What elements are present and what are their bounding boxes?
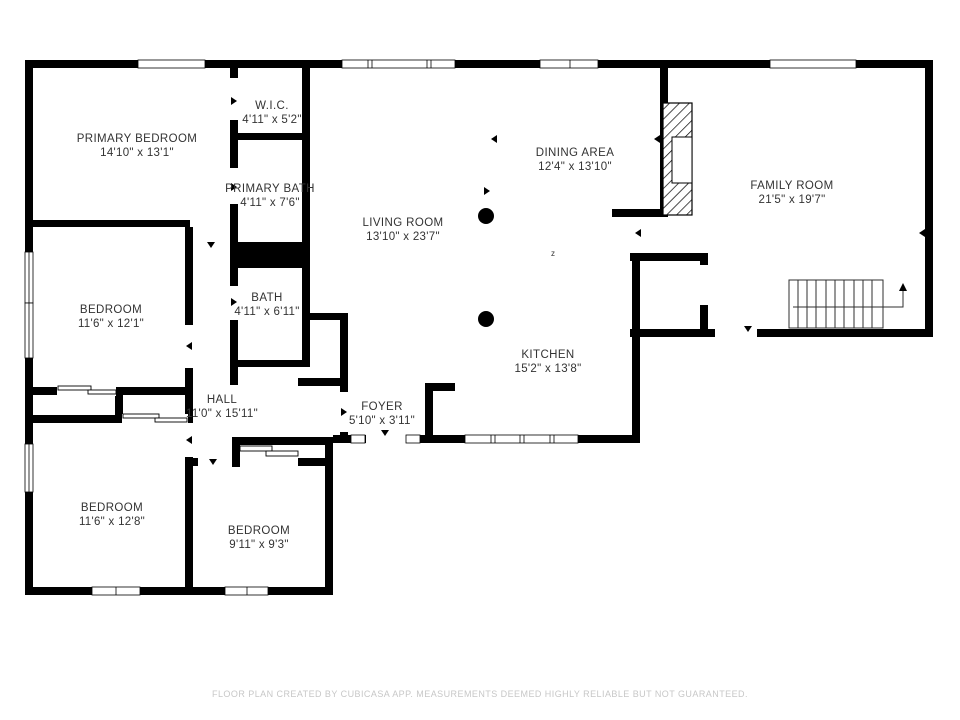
window xyxy=(342,60,455,68)
wall-segment xyxy=(340,313,348,386)
sliding-door xyxy=(266,451,298,456)
camera-mark xyxy=(654,135,660,143)
camera-mark xyxy=(635,229,641,237)
window-opening xyxy=(770,60,856,68)
wall-segment xyxy=(33,220,190,227)
room-dims-primary-bedroom: 14'10" x 13'1" xyxy=(100,147,174,159)
front-door-gap xyxy=(366,433,408,445)
wall-segment xyxy=(302,60,310,367)
sliding-door xyxy=(123,414,159,418)
room-label-kitchen: KITCHEN xyxy=(521,349,574,361)
room-label-foyer: FOYER xyxy=(361,401,403,413)
wall-segment xyxy=(757,329,933,337)
wall-segment xyxy=(700,253,708,265)
wall-segment xyxy=(230,133,310,140)
support-columns xyxy=(478,208,494,327)
room-label-primary-bedroom: PRIMARY BEDROOM xyxy=(77,133,198,145)
stair-up-arrow xyxy=(899,283,907,291)
room-dims-hall: 11'0" x 15'11" xyxy=(186,408,258,420)
window xyxy=(351,435,365,443)
window xyxy=(225,587,268,595)
room-label-bath: BATH xyxy=(251,292,282,304)
room-dims-bedroom-bottom-left: 11'6" x 12'8" xyxy=(79,516,145,528)
wall-segment xyxy=(185,458,198,466)
room-dims-living-room: 13'10" x 23'7" xyxy=(366,231,440,243)
wall-segment xyxy=(25,587,333,595)
room-dims-bath: 4'11" x 6'11" xyxy=(234,306,299,318)
room-label-hall: HALL xyxy=(207,394,238,406)
wall-segment xyxy=(632,253,640,443)
footer-credit: FLOOR PLAN CREATED BY CUBICASA APP. MEAS… xyxy=(212,689,748,699)
wall-segment xyxy=(425,383,455,391)
window xyxy=(465,435,578,443)
wall-segment xyxy=(298,458,333,466)
room-label-bedroom-bottom-mid: BEDROOM xyxy=(228,525,290,537)
staircase xyxy=(789,280,907,328)
camera-mark xyxy=(919,229,925,237)
wall-segment xyxy=(230,360,310,367)
room-label-dining-area: DINING AREA xyxy=(536,147,615,159)
wall-segment xyxy=(925,60,933,337)
room-dims-primary-bath: 4'11" x 7'6" xyxy=(240,197,299,209)
room-label-wic: W.I.C. xyxy=(255,100,289,112)
door-arrow xyxy=(744,326,752,332)
fireplace xyxy=(663,103,692,215)
stair-outline xyxy=(789,280,883,328)
sliding-door xyxy=(155,418,187,422)
room-dims-dining-area: 12'4" x 13'10" xyxy=(538,161,612,173)
room-label-primary-bath: PRIMARY BATH xyxy=(225,183,315,195)
room-dims-wic: 4'11" x 5'2" xyxy=(242,114,301,126)
room-dims-kitchen: 15'2" x 13'8" xyxy=(515,363,582,375)
room-dims-foyer: 5'10" x 3'11" xyxy=(349,415,415,427)
wall-segment xyxy=(232,437,333,445)
door-arrow xyxy=(207,242,215,248)
sliding-door xyxy=(240,446,272,451)
wall-segment xyxy=(700,305,708,337)
support-column xyxy=(478,208,494,224)
camera-mark xyxy=(491,135,497,143)
room-label-living-room: LIVING ROOM xyxy=(362,217,443,229)
floor-plan: z PRIMARY BEDROOM 14'10" x 13'1" W.I.C. … xyxy=(0,0,960,720)
floor-plan-page: z PRIMARY BEDROOM 14'10" x 13'1" W.I.C. … xyxy=(0,0,960,720)
room-label-bedroom-bottom-left: BEDROOM xyxy=(81,502,143,514)
window xyxy=(406,435,420,443)
linen-closet-block xyxy=(230,242,310,268)
wall-segment xyxy=(612,209,668,217)
stair-direction-line xyxy=(793,289,903,307)
window xyxy=(540,60,598,68)
wall-segment xyxy=(630,253,708,261)
wall-segment xyxy=(425,383,433,443)
sliding-door xyxy=(58,386,91,390)
compass-mark: z xyxy=(551,249,555,258)
wall-segment xyxy=(232,437,240,467)
room-label-family-room: FAMILY ROOM xyxy=(750,180,833,192)
window xyxy=(138,60,205,68)
support-column xyxy=(478,311,494,327)
room-label-bedroom-mid: BEDROOM xyxy=(80,304,142,316)
room-dims-family-room: 21'5" x 19'7" xyxy=(759,194,826,206)
room-dims-bedroom-mid: 11'6" x 12'1" xyxy=(78,318,144,330)
room-dims-bedroom-bottom-mid: 9'11" x 9'3" xyxy=(229,539,288,551)
sliding-door xyxy=(88,390,116,394)
door-arrow xyxy=(209,459,217,465)
camera-mark xyxy=(484,187,490,195)
